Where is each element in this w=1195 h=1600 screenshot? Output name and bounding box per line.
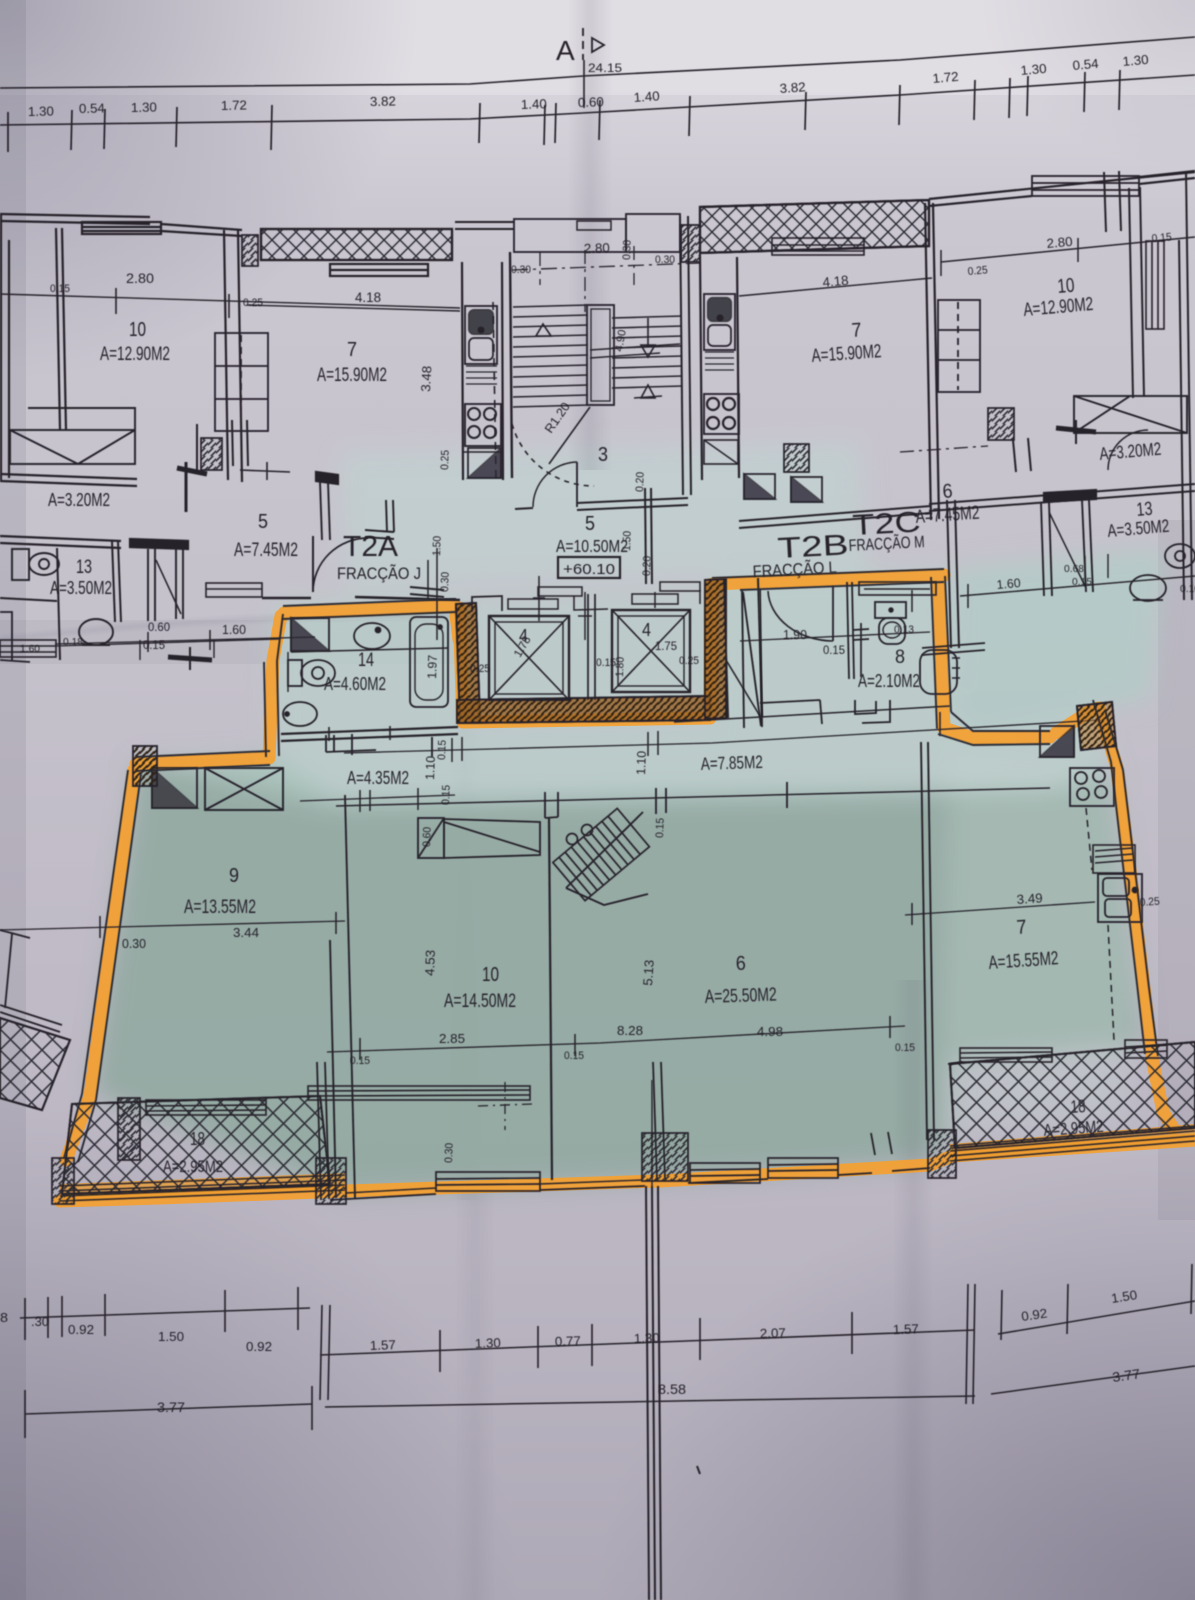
svg-text:9: 9 xyxy=(229,865,239,887)
svg-text:7: 7 xyxy=(1016,916,1028,939)
svg-text:1.72: 1.72 xyxy=(932,69,959,86)
svg-text:1.60: 1.60 xyxy=(20,643,40,655)
svg-text:0.25: 0.25 xyxy=(470,663,490,675)
svg-text:6: 6 xyxy=(942,480,954,503)
svg-text:3: 3 xyxy=(598,444,608,466)
svg-text:3.48: 3.48 xyxy=(418,365,434,392)
svg-text:1.10: 1.10 xyxy=(634,751,649,776)
svg-text:A=3.50M2: A=3.50M2 xyxy=(50,578,112,598)
svg-text:10: 10 xyxy=(129,319,146,341)
svg-text:3.44: 3.44 xyxy=(233,925,259,940)
svg-text:A=4.35M2: A=4.35M2 xyxy=(347,768,409,788)
svg-text:0.20: 0.20 xyxy=(634,472,647,492)
svg-text:0.30: 0.30 xyxy=(655,254,675,266)
svg-text:T2A: T2A xyxy=(343,531,399,563)
svg-text:0.20: 0.20 xyxy=(641,556,654,576)
svg-text:0.15: 0.15 xyxy=(440,785,453,805)
svg-text:0.30: 0.30 xyxy=(439,572,452,592)
svg-text:0.30: 0.30 xyxy=(621,240,634,260)
svg-text:5: 5 xyxy=(585,513,595,535)
svg-text:1.40: 1.40 xyxy=(521,96,548,112)
svg-text:1.50: 1.50 xyxy=(621,531,634,551)
svg-text:2.80: 2.80 xyxy=(1046,234,1073,251)
svg-text:0.54: 0.54 xyxy=(79,101,105,116)
svg-text:0.25: 0.25 xyxy=(1139,896,1160,909)
svg-text:10: 10 xyxy=(482,964,499,986)
svg-text:A=2.95M2: A=2.95M2 xyxy=(163,1157,223,1176)
svg-text:0.77: 0.77 xyxy=(555,1333,582,1349)
svg-text:1.30: 1.30 xyxy=(1020,61,1047,78)
svg-text:8: 8 xyxy=(895,647,905,668)
svg-text:8.28: 8.28 xyxy=(617,1023,643,1038)
svg-text:2.80: 2.80 xyxy=(126,271,154,286)
svg-text:3.49: 3.49 xyxy=(1016,890,1043,907)
svg-text:7: 7 xyxy=(347,339,357,361)
svg-text:4.98: 4.98 xyxy=(757,1024,783,1039)
svg-text:18: 18 xyxy=(1070,1096,1086,1117)
svg-text:18: 18 xyxy=(190,1129,205,1149)
svg-text:1.97: 1.97 xyxy=(425,655,440,680)
svg-text:0.15: 0.15 xyxy=(50,283,70,295)
svg-text:A=25.50M2: A=25.50M2 xyxy=(704,984,777,1007)
svg-text:1.90: 1.90 xyxy=(783,628,807,642)
svg-text:1.57: 1.57 xyxy=(893,1321,920,1337)
svg-text:0.15: 0.15 xyxy=(143,638,165,652)
svg-text:1.60: 1.60 xyxy=(222,623,246,637)
svg-text:A=2.10M2: A=2.10M2 xyxy=(858,671,920,691)
svg-text:0.25: 0.25 xyxy=(679,655,699,667)
svg-text:0.15: 0.15 xyxy=(436,740,449,760)
svg-text:A=7.45M2: A=7.45M2 xyxy=(234,540,298,561)
svg-text:4: 4 xyxy=(642,620,651,640)
svg-text:1.30: 1.30 xyxy=(131,100,157,115)
svg-text:0.54: 0.54 xyxy=(1072,56,1099,73)
svg-text:2.85: 2.85 xyxy=(439,1031,465,1046)
svg-text:A=4.60M2: A=4.60M2 xyxy=(324,674,386,694)
svg-text:0.13: 0.13 xyxy=(894,624,914,636)
svg-text:6: 6 xyxy=(735,953,746,975)
svg-text:0.15: 0.15 xyxy=(1151,231,1172,245)
svg-text:0.15: 0.15 xyxy=(350,1055,370,1067)
svg-text:A=12.90M2: A=12.90M2 xyxy=(100,344,170,365)
svg-text:0.92: 0.92 xyxy=(68,1322,94,1337)
svg-text:5: 5 xyxy=(258,511,268,533)
svg-text:A=7.45M2: A=7.45M2 xyxy=(915,503,980,528)
svg-text:2.07: 2.07 xyxy=(760,1325,787,1341)
svg-text:0.30: 0.30 xyxy=(122,937,146,951)
svg-text:0.18: 0.18 xyxy=(63,636,83,648)
svg-text:0.25: 0.25 xyxy=(967,264,988,278)
svg-text:1.72: 1.72 xyxy=(221,98,247,113)
svg-text:0.60: 0.60 xyxy=(578,94,605,110)
svg-text:1.10: 1.10 xyxy=(423,756,438,781)
svg-text:0.15: 0.15 xyxy=(596,657,616,669)
svg-text:0.15: 0.15 xyxy=(895,1042,915,1054)
svg-text:1.50: 1.50 xyxy=(431,536,444,556)
svg-text:0.15: 0.15 xyxy=(823,645,845,657)
svg-text:1.57: 1.57 xyxy=(370,1337,397,1353)
svg-text:A=7.85M2: A=7.85M2 xyxy=(700,752,763,774)
svg-text:14: 14 xyxy=(358,650,374,671)
svg-text:0.25: 0.25 xyxy=(439,450,452,470)
svg-text:0.30: 0.30 xyxy=(443,1143,456,1163)
svg-text:1.50: 1.50 xyxy=(158,1329,184,1344)
svg-text:5.13: 5.13 xyxy=(640,959,657,986)
svg-text:0.15: 0.15 xyxy=(564,1050,584,1062)
svg-text:A: A xyxy=(556,35,575,66)
svg-text:0.92: 0.92 xyxy=(246,1339,272,1354)
svg-text:4.18: 4.18 xyxy=(822,273,849,290)
svg-text:1.40: 1.40 xyxy=(633,88,660,105)
svg-text:13: 13 xyxy=(76,557,92,578)
svg-text:1.30: 1.30 xyxy=(28,104,54,119)
svg-text:3.77: 3.77 xyxy=(157,1400,185,1415)
svg-text:+60.10: +60.10 xyxy=(563,561,615,578)
svg-text:0.30: 0.30 xyxy=(511,264,531,276)
svg-text:A=3.20M2: A=3.20M2 xyxy=(48,490,110,510)
svg-text:2.80: 2.80 xyxy=(584,240,611,256)
svg-text:1.75: 1.75 xyxy=(655,639,677,653)
svg-text:A=15.90M2: A=15.90M2 xyxy=(317,365,387,386)
svg-text:.30: .30 xyxy=(31,1315,49,1329)
svg-text:0.60: 0.60 xyxy=(421,827,434,847)
svg-text:A=14.50M2: A=14.50M2 xyxy=(444,991,516,1012)
svg-text:1.30: 1.30 xyxy=(1122,52,1149,69)
svg-text:7: 7 xyxy=(851,319,863,342)
svg-text:4.53: 4.53 xyxy=(422,950,438,977)
svg-text:0.15: 0.15 xyxy=(654,818,667,838)
svg-text:1.30: 1.30 xyxy=(475,1335,502,1351)
svg-text:8: 8 xyxy=(0,1311,8,1325)
svg-text:FRACÇÃO J: FRACÇÃO J xyxy=(337,563,421,583)
svg-text:4.18: 4.18 xyxy=(355,290,381,305)
svg-text:3.82: 3.82 xyxy=(370,94,396,109)
svg-text:0.10: 0.10 xyxy=(1180,583,1195,595)
svg-text:A=13.55M2: A=13.55M2 xyxy=(184,897,256,918)
svg-text:24.15: 24.15 xyxy=(588,61,622,75)
svg-text:10: 10 xyxy=(1057,275,1076,298)
svg-text:1.30: 1.30 xyxy=(634,1330,661,1346)
svg-text:0.15: 0.15 xyxy=(1072,576,1092,588)
svg-text:8.58: 8.58 xyxy=(658,1382,686,1397)
svg-text:1.80: 1.80 xyxy=(614,657,627,677)
svg-text:0.25: 0.25 xyxy=(243,297,263,309)
svg-text:3.82: 3.82 xyxy=(779,79,806,96)
svg-text:A=10.50M2: A=10.50M2 xyxy=(556,536,628,556)
svg-text:1.60: 1.60 xyxy=(996,576,1021,592)
svg-text:0.68: 0.68 xyxy=(1064,563,1084,575)
svg-text:0.60: 0.60 xyxy=(148,620,170,634)
